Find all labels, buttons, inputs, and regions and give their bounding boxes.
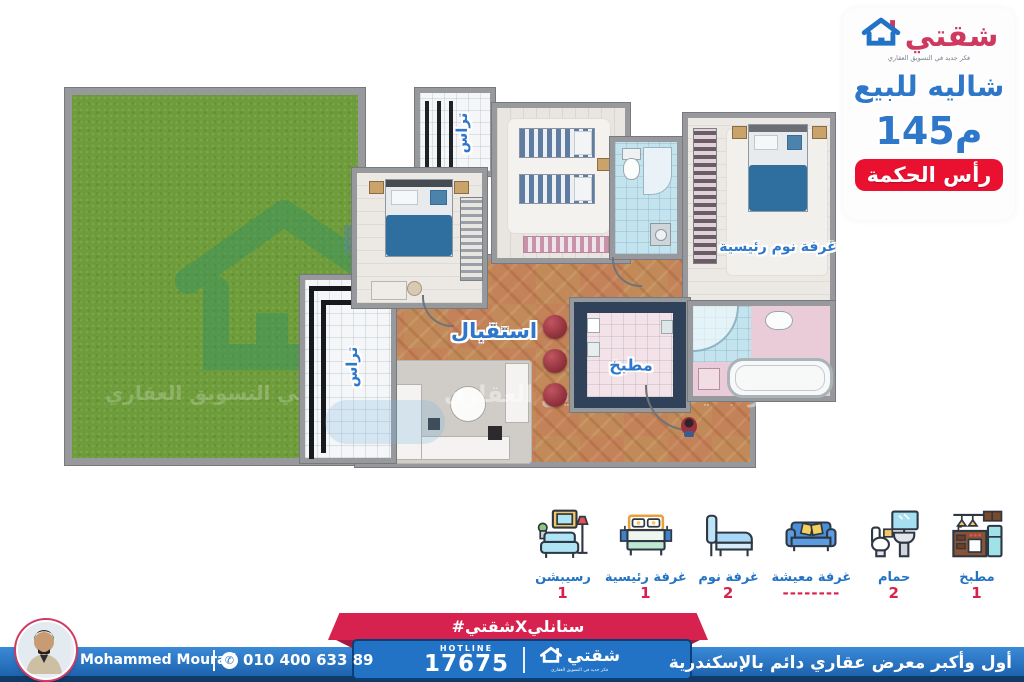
- legend-count: 1: [640, 586, 651, 600]
- round-shower: [693, 306, 739, 352]
- person-figure: [678, 413, 700, 443]
- striped-rug: [523, 236, 609, 253]
- wardrobe: [460, 197, 483, 281]
- footer-brand-name: شقتي: [567, 648, 620, 665]
- bathroom-1: [610, 137, 682, 259]
- wardrobe: [693, 128, 717, 264]
- bathtub: [727, 358, 833, 398]
- shower-corner: [693, 306, 751, 362]
- hashtag-ribbon: #شقتيXستانلي: [328, 613, 708, 640]
- legend-item-master-bedroom: غرفة رئيسية 1: [607, 509, 685, 600]
- phone-icon: ✆: [221, 652, 238, 669]
- legend-count: 1: [971, 586, 982, 600]
- nightstand: [454, 181, 469, 194]
- legend-label: حمام: [878, 570, 911, 585]
- room-label-master-bedroom: غرفة نوم رئيسية: [719, 239, 836, 255]
- exhibition-tagline: أول وأكبر معرض عقاري دائم بالإسكندرية: [669, 653, 1012, 673]
- legend-label: غرفة رئيسية: [605, 570, 687, 585]
- offer-title: شاليه للبيع: [843, 70, 1015, 103]
- single-bed: [519, 128, 595, 158]
- kitchen-stove-icon: [950, 509, 1004, 567]
- hotline-divider: [523, 647, 525, 673]
- hotline-box: HOTLINE 17675 شقتي فكر جديد في التسويق ا…: [352, 639, 692, 680]
- stove: [587, 318, 600, 333]
- watermark-blur: [325, 400, 445, 444]
- room-label-kitchen: مطبخ: [609, 356, 653, 375]
- legend-item-kitchen: مطبخ 1: [938, 509, 1016, 600]
- footer-logo-caption: فكر جديد في التسويق العقاري: [551, 669, 608, 674]
- hotline: HOTLINE 17675: [424, 644, 509, 675]
- house-icon: [860, 16, 902, 52]
- bathroom-2: [688, 301, 835, 401]
- pouf: [543, 349, 567, 373]
- coffee-table: [450, 386, 486, 422]
- legend-item-bathroom: حمام 2: [855, 509, 933, 600]
- legend-label: رسيبشن: [535, 570, 591, 585]
- offer-panel: شقتي فكر جديد في التسويق العقاري شاليه ل…: [843, 8, 1015, 220]
- shower: [643, 147, 672, 195]
- sink: [587, 342, 600, 357]
- agent-photo: [16, 620, 76, 680]
- floor-plan: فكر جديد في التسويق العقاري فكر جديد في …: [65, 85, 835, 470]
- footer-logo: شقتي فكر جديد في التسويق العقاري: [539, 646, 620, 674]
- pouf: [543, 383, 567, 407]
- toilet-sink-icon: [867, 509, 921, 567]
- phone-number: 010 400 633 89: [243, 651, 373, 669]
- pouf: [543, 315, 567, 339]
- brand-logo: شقتي: [843, 16, 1015, 52]
- legend-count: --------: [782, 586, 840, 600]
- legend-label: غرفة نوم: [698, 570, 758, 585]
- brand-name: شقتي: [905, 22, 999, 52]
- single-bed-icon: [702, 509, 756, 567]
- legend-item-reception: رسيبشن 1: [524, 509, 602, 600]
- master-bedroom: [683, 113, 835, 313]
- room-label-reception: استقبال: [451, 319, 537, 343]
- legend-count: 2: [723, 586, 734, 600]
- legend-count: 1: [557, 586, 568, 600]
- house-icon: [539, 646, 563, 667]
- toilet: [623, 158, 640, 180]
- double-bed: [385, 179, 453, 257]
- nightstand: [732, 126, 747, 139]
- nightstand: [812, 126, 827, 139]
- stool: [407, 281, 422, 296]
- nightstand: [369, 181, 384, 194]
- desk: [371, 281, 407, 300]
- master-bed-icon: [619, 509, 673, 567]
- washbasin: [698, 368, 720, 390]
- legend-item-bedroom: غرفة نوم 2: [690, 509, 768, 600]
- brand-tagline: فكر جديد في التسويق العقاري: [843, 54, 1015, 62]
- legend: رسيبشن 1: [524, 509, 1016, 600]
- legend-count: 2: [888, 586, 899, 600]
- reception-sofa-icon: [536, 509, 590, 567]
- real-estate-flyer: شقتي فكر جديد في التسويق العقاري شاليه ل…: [0, 0, 1024, 682]
- room-label-terrace-top: تراس: [453, 113, 471, 154]
- side-table: [488, 426, 502, 440]
- location-badge: رأس الحكمة: [855, 159, 1004, 191]
- shelf-unit: [505, 363, 529, 423]
- toilet: [765, 311, 793, 330]
- hotline-number: 17675: [424, 653, 509, 675]
- bedroom-2: [352, 168, 487, 308]
- legend-label: مطبخ: [959, 570, 994, 585]
- legend-item-living-room: غرفة معيشة --------: [772, 509, 850, 600]
- fridge: [661, 320, 673, 334]
- living-sofa-icon: [784, 509, 838, 567]
- footer-divider: [213, 650, 215, 671]
- master-bed: [748, 124, 808, 212]
- hashtag-text: #شقتيXستانلي: [452, 617, 585, 636]
- room-label-terrace-left: تراس: [343, 347, 361, 388]
- legend-label: غرفة معيشة: [772, 570, 852, 585]
- washer: [650, 223, 671, 246]
- single-bed: [519, 174, 595, 204]
- offer-area: 145م: [843, 109, 1015, 153]
- phone-block: ✆ 010 400 633 89: [221, 651, 373, 669]
